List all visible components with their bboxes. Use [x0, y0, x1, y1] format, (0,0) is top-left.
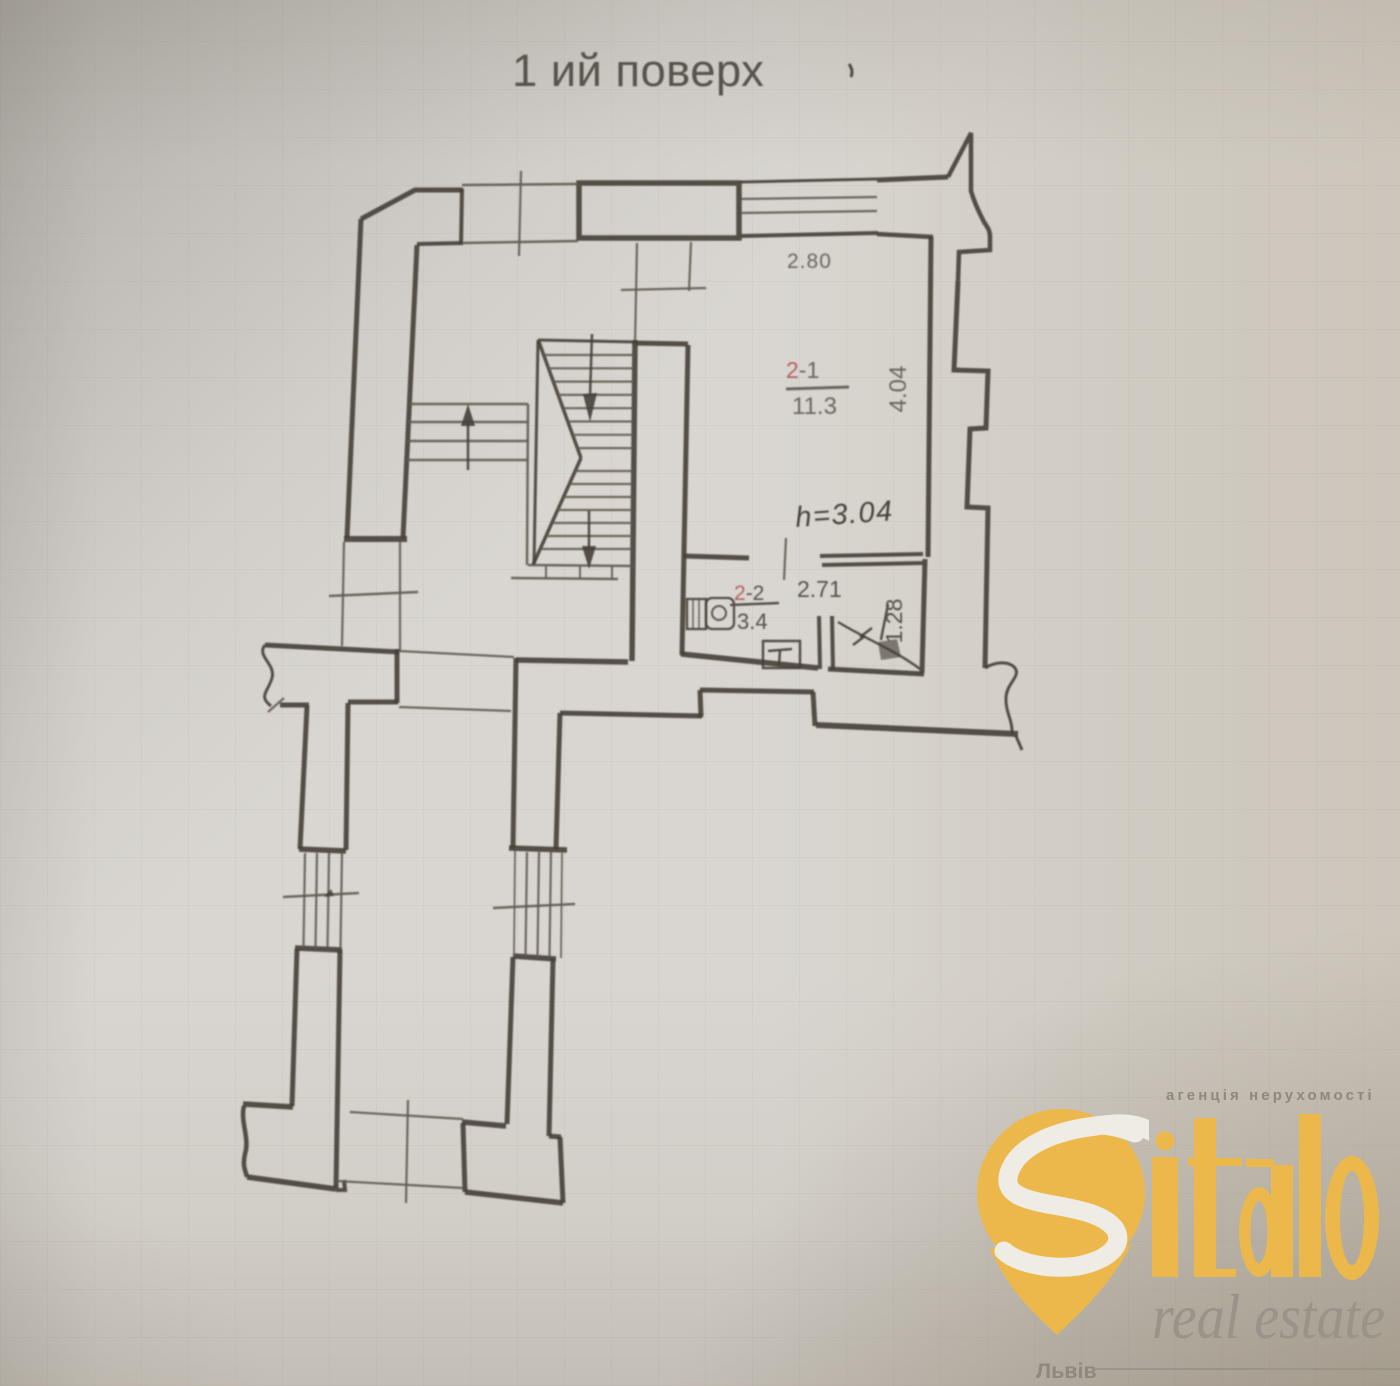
svg-text:агенція нерухомості: агенція нерухомості	[1166, 1087, 1375, 1104]
svg-text:real estate: real estate	[1152, 1281, 1385, 1352]
svg-text:Львів: Львів	[1036, 1359, 1097, 1383]
